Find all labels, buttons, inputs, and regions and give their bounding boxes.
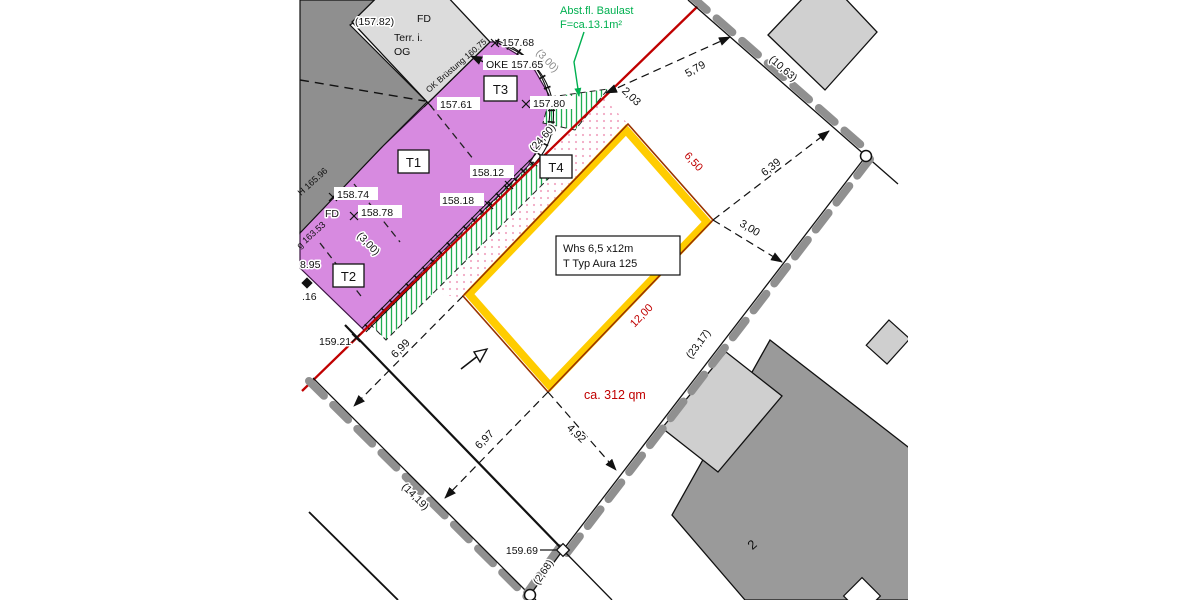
- fd-left: FD: [325, 208, 339, 220]
- elevation-158-95: 8.95: [300, 259, 321, 271]
- site-plan: Whs 6,5 x12m T Typ Aura 125 ca. 312 qm 2…: [0, 0, 1200, 600]
- room-t3: T3: [493, 82, 508, 97]
- elevation-158-12: 158.12: [472, 167, 504, 179]
- dim-3-00: 3,00: [737, 218, 762, 239]
- baulast-note-line2: F=ca.13.1m²: [560, 19, 622, 31]
- elevation-157-68: 157.68: [502, 37, 534, 49]
- dim-2-03: 2,03: [619, 85, 643, 109]
- planned-label-line2: T Typ Aura 125: [563, 258, 637, 270]
- elevation-157-61: 157.61: [440, 99, 472, 111]
- baulast-leader: [574, 32, 584, 96]
- dim-12-00: 12,00: [628, 302, 656, 330]
- elevation-159-69: 159.69: [506, 545, 538, 557]
- planned-label-line1: Whs 6,5 x12m: [563, 243, 633, 255]
- elevation-157-82: (157.82): [355, 16, 394, 28]
- dim-23-17: (23,17): [684, 327, 714, 361]
- elevation-oke-157-65: OKE 157.65: [486, 59, 543, 71]
- small-right-building: [866, 320, 910, 364]
- room-t1: T1: [406, 155, 421, 170]
- room-t4: T4: [548, 160, 563, 175]
- baulast-note-line1: Abst.fl. Baulast: [560, 5, 633, 17]
- elevation-x16: .16: [302, 291, 317, 303]
- elevation-159-21: 159.21: [319, 336, 351, 348]
- site-plan-page: Whs 6,5 x12m T Typ Aura 125 ca. 312 qm 2…: [0, 0, 1200, 600]
- entrance-arrow-icon: [461, 349, 487, 369]
- dim-6-50: 6,50: [682, 150, 705, 174]
- dim-6-99: 6,99: [389, 337, 413, 361]
- road-edge-line: [309, 512, 398, 600]
- elevation-158-74: 158.74: [337, 189, 369, 201]
- dim-5-79: 5,79: [683, 59, 708, 80]
- terr-label: Terr. i.: [394, 32, 423, 44]
- dim-2-68: (2,68): [531, 558, 556, 587]
- area-label: ca. 312 qm: [584, 388, 646, 402]
- og-label: OG: [394, 46, 410, 58]
- dim-6-39: 6,39: [759, 156, 783, 179]
- room-t2: T2: [341, 269, 356, 284]
- fd-top: FD: [417, 13, 431, 25]
- elevation-158-78: 158.78: [361, 207, 393, 219]
- dim-4-92: 4,92: [564, 422, 588, 446]
- elevation-158-18: 158.18: [442, 195, 474, 207]
- elevation-157-80: 157.80: [533, 98, 565, 110]
